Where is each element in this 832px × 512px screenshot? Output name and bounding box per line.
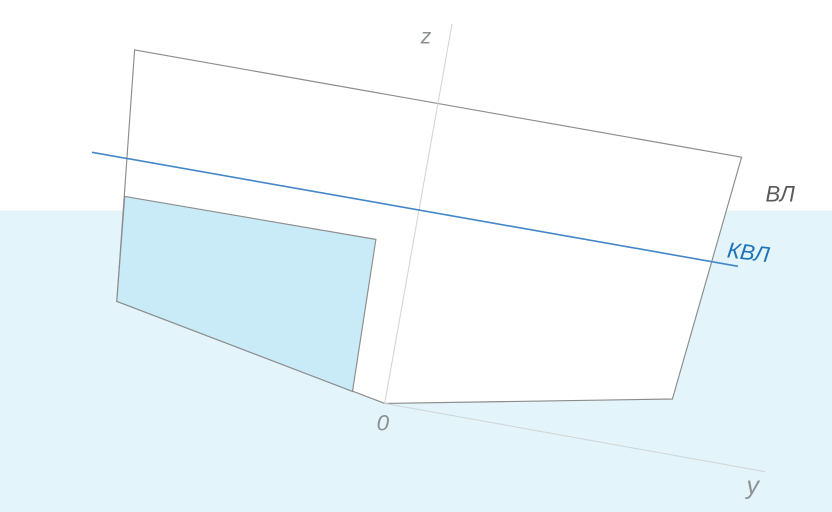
svg-text:z: z <box>420 25 432 48</box>
svg-text:0: 0 <box>377 410 390 435</box>
svg-text:y: y <box>745 472 761 500</box>
svg-text:КВЛ: КВЛ <box>726 237 772 267</box>
svg-text:ВЛ: ВЛ <box>766 181 796 206</box>
